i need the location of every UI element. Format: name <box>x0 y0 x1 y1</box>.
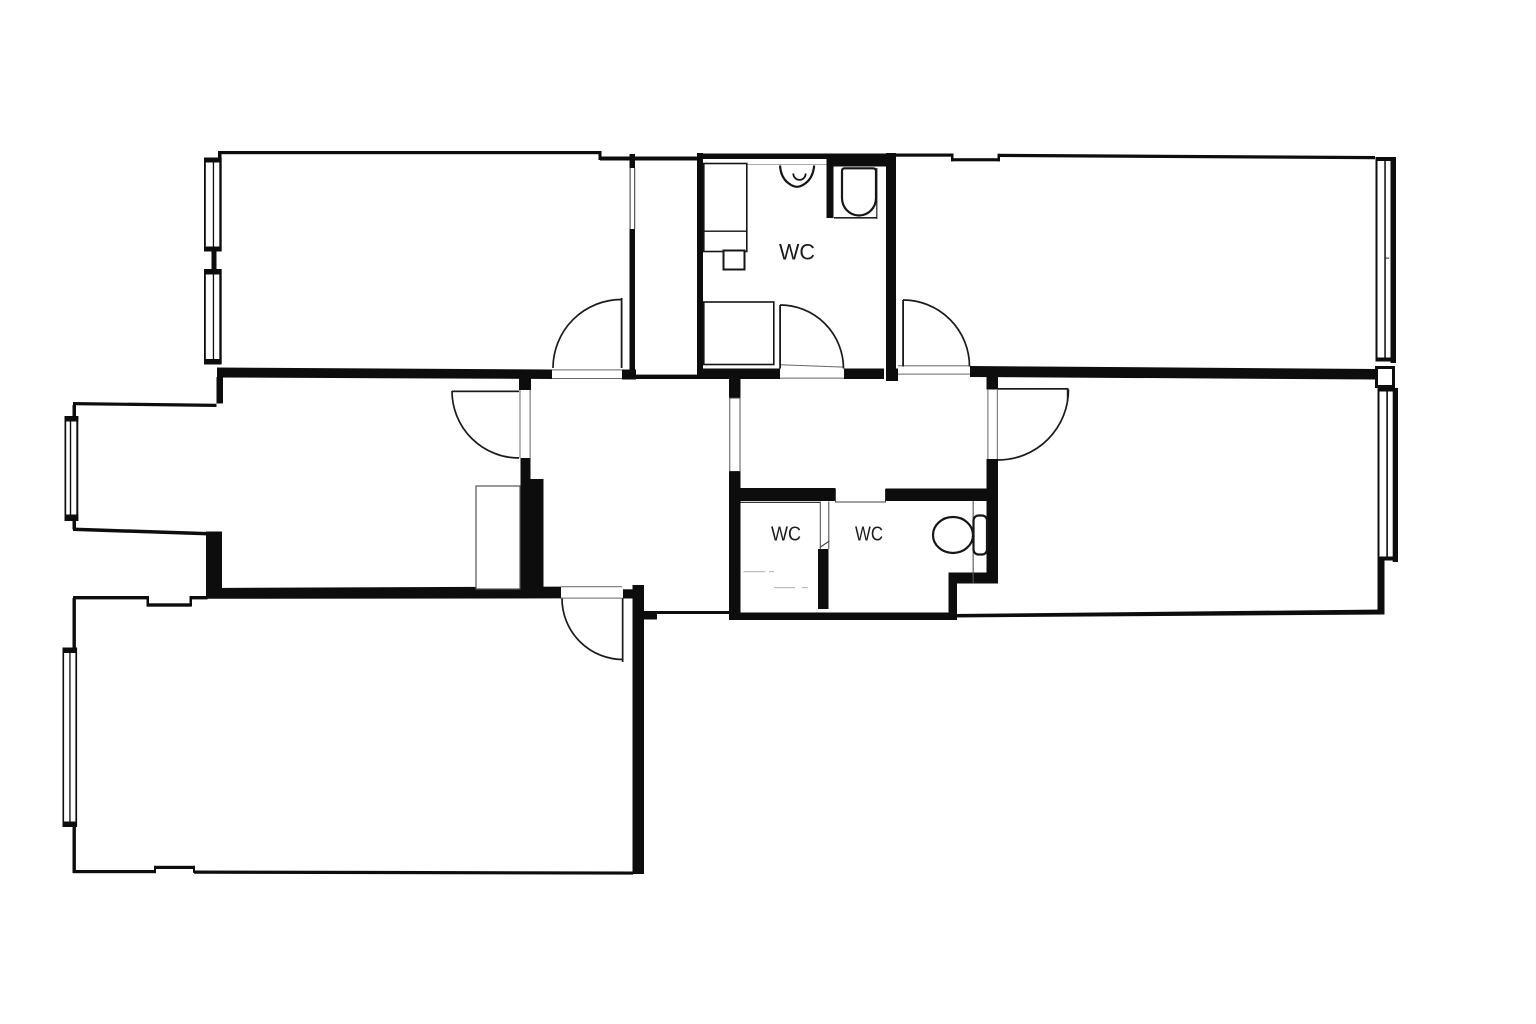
svg-text:WC: WC <box>855 524 883 546</box>
svg-text:WC: WC <box>779 240 815 265</box>
svg-text:WC: WC <box>771 524 801 546</box>
